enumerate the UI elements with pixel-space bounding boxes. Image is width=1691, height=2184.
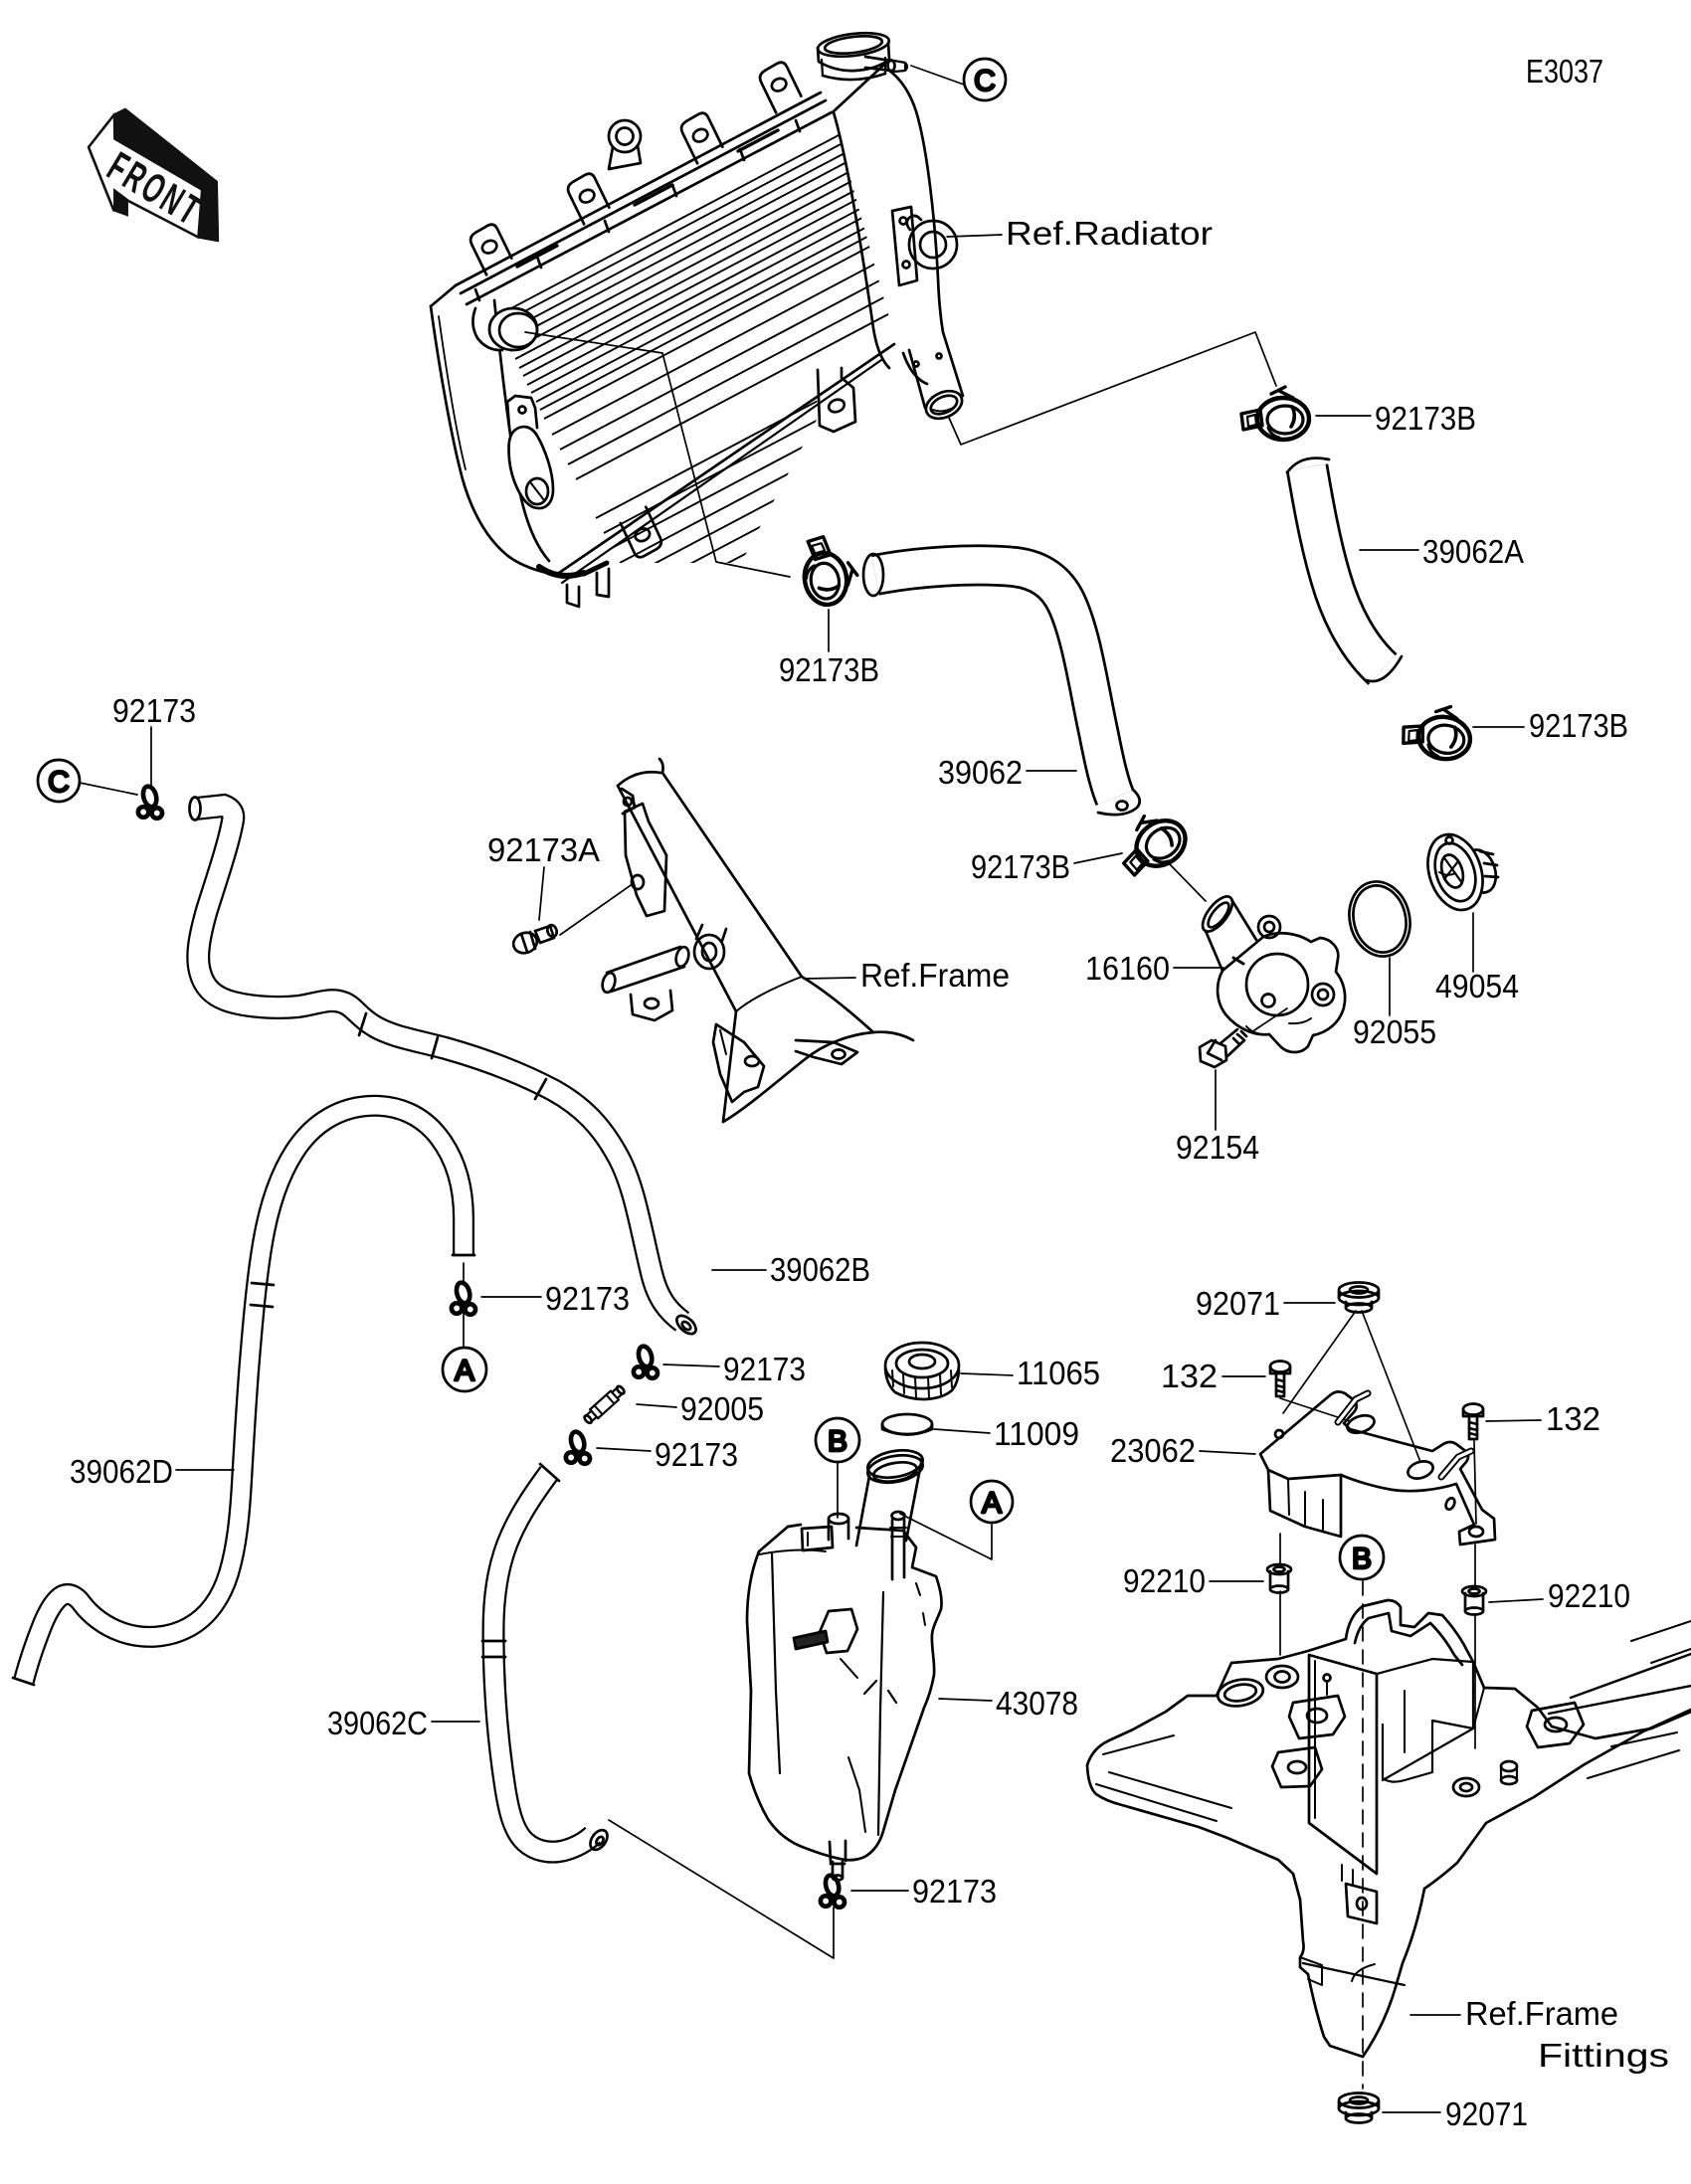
svg-text:92173: 92173	[912, 1873, 997, 1910]
svg-text:B: B	[828, 1425, 847, 1458]
svg-text:C: C	[48, 766, 70, 799]
svg-text:Ref.Frame: Ref.Frame	[860, 957, 1010, 994]
svg-text:92173B: 92173B	[971, 848, 1070, 885]
svg-text:92210: 92210	[1548, 1577, 1630, 1614]
svg-text:92173B: 92173B	[1529, 707, 1628, 744]
svg-text:92173A: 92173A	[487, 831, 600, 868]
svg-text:B: B	[1352, 1543, 1372, 1575]
svg-text:132: 132	[1161, 1358, 1218, 1394]
svg-text:92173: 92173	[112, 692, 196, 729]
svg-text:C: C	[974, 65, 996, 97]
svg-text:11009: 11009	[994, 1415, 1079, 1452]
svg-text:92005: 92005	[680, 1390, 764, 1427]
svg-text:39062C: 39062C	[327, 1705, 428, 1741]
svg-text:39062D: 39062D	[70, 1453, 173, 1490]
svg-text:43078: 43078	[996, 1685, 1078, 1722]
svg-text:92071: 92071	[1445, 2095, 1528, 2132]
svg-text:E3037: E3037	[1526, 53, 1603, 90]
svg-text:Ref.Radiator: Ref.Radiator	[1006, 215, 1213, 252]
svg-text:39062: 39062	[938, 754, 1023, 791]
svg-text:49054: 49054	[1435, 968, 1519, 1004]
svg-text:A: A	[982, 1487, 1002, 1520]
svg-text:A: A	[455, 1355, 474, 1387]
svg-text:Fittings: Fittings	[1538, 2037, 1669, 2074]
svg-text:16160: 16160	[1085, 950, 1170, 987]
svg-text:92055: 92055	[1353, 1013, 1436, 1050]
svg-text:Ref.Frame: Ref.Frame	[1465, 1995, 1618, 2032]
svg-text:92173B: 92173B	[779, 651, 879, 688]
svg-text:92173B: 92173B	[1375, 400, 1476, 437]
svg-text:92173: 92173	[723, 1351, 806, 1387]
svg-text:39062A: 39062A	[1422, 533, 1524, 570]
svg-text:92154: 92154	[1176, 1129, 1259, 1166]
svg-text:132: 132	[1546, 1400, 1600, 1437]
svg-text:39062B: 39062B	[770, 1251, 870, 1288]
svg-text:92210: 92210	[1123, 1562, 1206, 1599]
svg-text:11065: 11065	[1017, 1355, 1100, 1391]
svg-text:92173: 92173	[545, 1280, 630, 1317]
svg-text:92071: 92071	[1196, 1285, 1280, 1322]
svg-text:92173: 92173	[655, 1436, 738, 1473]
svg-text:23062: 23062	[1110, 1432, 1196, 1469]
